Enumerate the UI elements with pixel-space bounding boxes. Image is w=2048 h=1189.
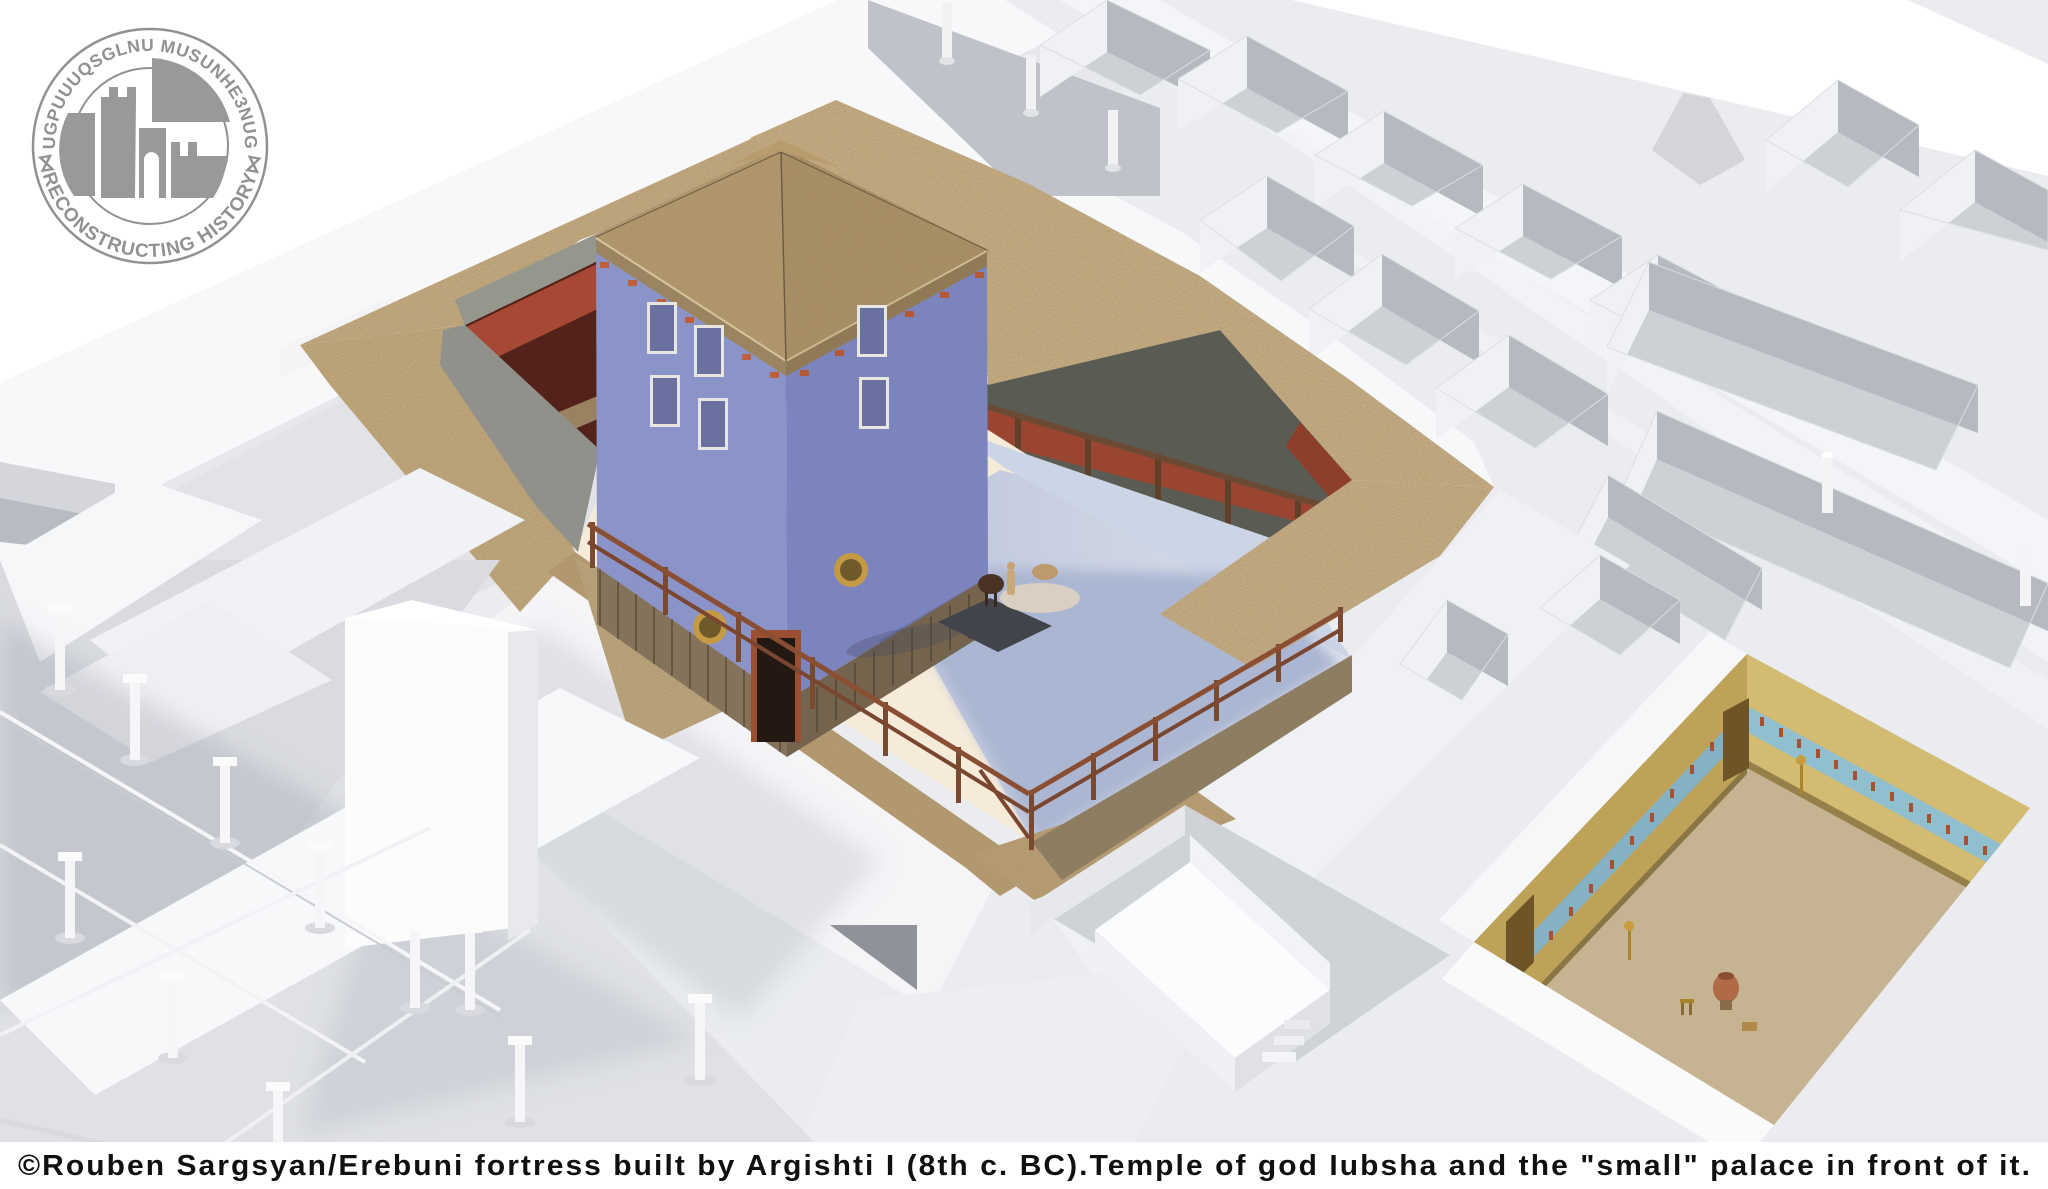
- svg-text:©Rouben Sargsyan/Erebuni fortr: ©Rouben Sargsyan/Erebuni fortress built …: [18, 1150, 2032, 1182]
